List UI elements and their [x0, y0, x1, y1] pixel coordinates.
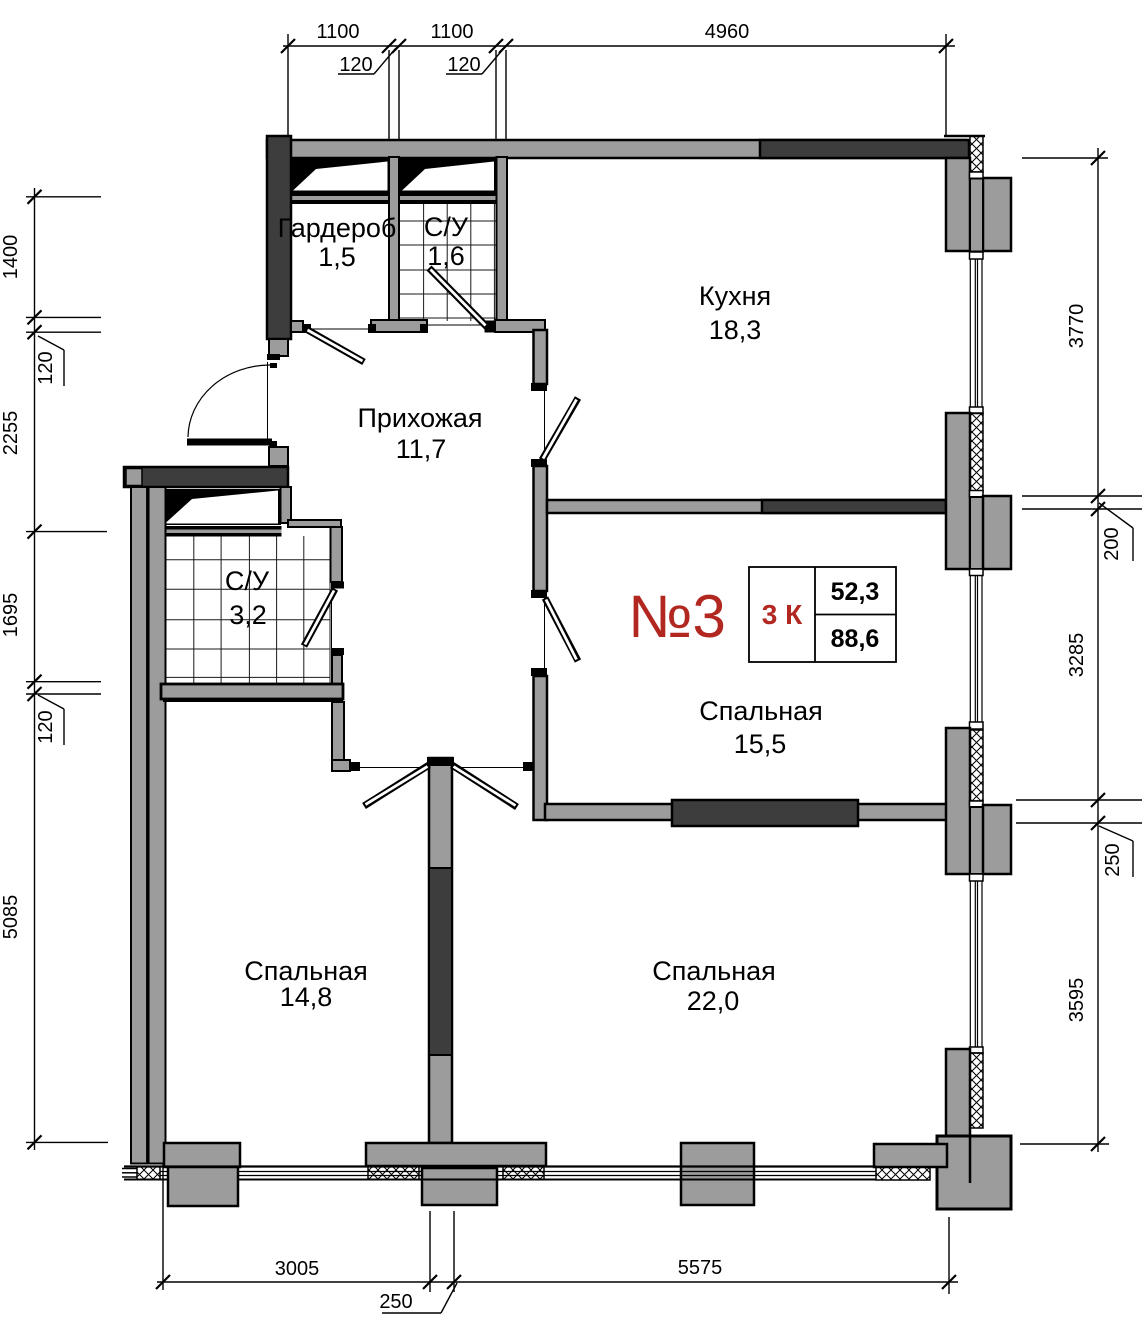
svg-text:3,2: 3,2 [229, 600, 267, 630]
svg-text:Кухня: Кухня [699, 281, 771, 311]
svg-text:120: 120 [35, 710, 57, 743]
svg-text:1,5: 1,5 [318, 242, 356, 272]
svg-text:52,3: 52,3 [831, 578, 880, 606]
svg-text:С/У: С/У [225, 566, 270, 596]
svg-text:250: 250 [379, 1291, 412, 1313]
svg-text:Спальная: Спальная [652, 956, 776, 986]
svg-text:120: 120 [339, 54, 372, 76]
svg-text:3005: 3005 [275, 1258, 320, 1280]
svg-text:3285: 3285 [1066, 633, 1088, 678]
svg-text:1695: 1695 [0, 593, 22, 638]
svg-text:120: 120 [35, 351, 57, 384]
svg-text:2255: 2255 [0, 411, 22, 456]
svg-text:11,7: 11,7 [396, 434, 447, 464]
svg-text:Прихожая: Прихожая [357, 403, 482, 433]
svg-text:1400: 1400 [0, 235, 22, 280]
svg-text:Гардероб: Гардероб [278, 213, 397, 243]
svg-text:14,8: 14,8 [280, 982, 333, 1012]
svg-text:88,6: 88,6 [831, 625, 880, 653]
svg-text:5085: 5085 [0, 895, 22, 940]
svg-text:3595: 3595 [1066, 978, 1088, 1023]
svg-text:18,3: 18,3 [709, 315, 762, 345]
svg-text:С/У: С/У [424, 212, 469, 242]
svg-text:15,5: 15,5 [734, 729, 787, 759]
svg-text:1,6: 1,6 [427, 241, 465, 271]
svg-text:4960: 4960 [705, 21, 750, 43]
svg-text:5575: 5575 [678, 1257, 723, 1279]
svg-text:3 К: 3 К [762, 599, 803, 630]
svg-text:1100: 1100 [430, 21, 473, 43]
svg-text:250: 250 [1102, 843, 1124, 876]
svg-text:№3: №3 [628, 583, 726, 650]
svg-text:120: 120 [447, 54, 480, 76]
svg-text:Спальная: Спальная [699, 696, 823, 726]
svg-text:22,0: 22,0 [687, 986, 740, 1016]
svg-text:200: 200 [1101, 527, 1123, 560]
svg-text:3770: 3770 [1066, 304, 1088, 349]
svg-text:1100: 1100 [316, 21, 359, 43]
